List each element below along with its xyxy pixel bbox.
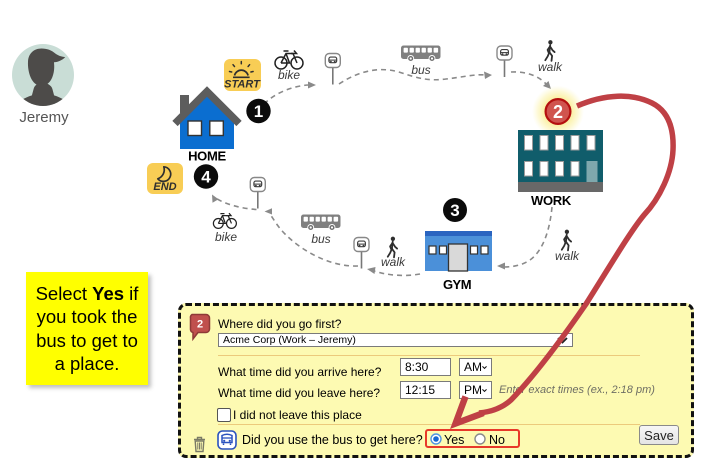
svg-text:Jeremy: Jeremy xyxy=(19,109,69,126)
svg-text:bike: bike xyxy=(215,230,237,244)
svg-text:WORK: WORK xyxy=(531,193,572,208)
svg-text:walk: walk xyxy=(555,249,580,263)
svg-text:START: START xyxy=(224,79,261,91)
svg-text:GYM: GYM xyxy=(443,277,471,292)
svg-text:HOME: HOME xyxy=(188,149,226,164)
svg-text:walk: walk xyxy=(381,255,406,269)
svg-text:1: 1 xyxy=(254,102,263,121)
svg-text:4: 4 xyxy=(201,168,211,187)
svg-text:3: 3 xyxy=(450,201,459,220)
svg-text:2: 2 xyxy=(197,319,203,331)
svg-text:walk: walk xyxy=(538,60,563,74)
svg-text:2: 2 xyxy=(553,102,563,122)
svg-text:bike: bike xyxy=(278,68,300,82)
svg-text:bus: bus xyxy=(411,63,430,77)
svg-text:END: END xyxy=(153,181,176,193)
svg-text:bus: bus xyxy=(311,232,330,246)
